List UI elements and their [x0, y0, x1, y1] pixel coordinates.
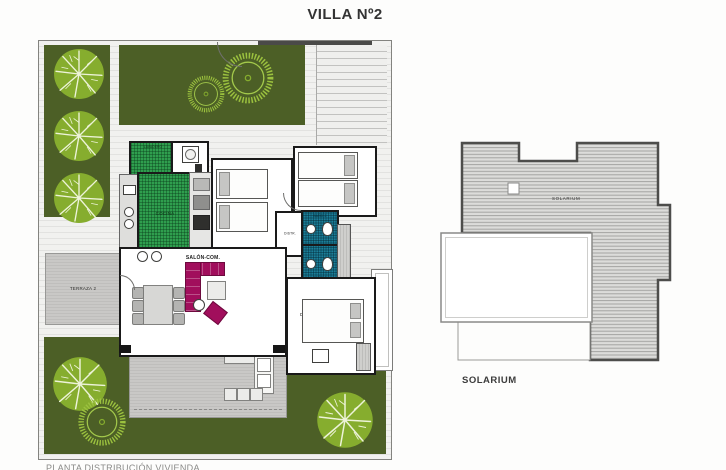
washing-machine-icon	[182, 146, 199, 163]
toilet-icon	[322, 257, 333, 271]
dining-chair	[173, 313, 185, 325]
room-bedroom-3: DORM 3	[293, 146, 377, 217]
room-bathroom-2: BAÑO 2	[301, 210, 339, 248]
dining-chair	[132, 313, 144, 325]
footer-caption: PLANTA DISTRIBUCIÓN VIVIENDA	[46, 463, 200, 470]
roof-caption: SOLARIUM	[462, 375, 517, 386]
bed	[216, 169, 268, 199]
skylight	[508, 183, 519, 194]
side-table	[193, 299, 205, 311]
tree-icon	[52, 47, 106, 101]
stool-icon	[137, 251, 148, 262]
roof-plan: SOLARIUM	[440, 130, 726, 390]
bush-ring-icon	[75, 395, 129, 449]
deck-edge-line	[134, 409, 282, 410]
utility-cabinet	[195, 164, 202, 172]
nightstand	[312, 349, 329, 363]
fridge	[193, 178, 210, 191]
lower-roof-section	[458, 322, 590, 360]
driveway	[316, 45, 387, 145]
terrace-2-label: TERRAZA 2	[70, 287, 96, 292]
bed	[298, 152, 358, 179]
ground-floor-plan: TERRAZA 2 TERRAZA 1 LAVADERO	[38, 40, 392, 460]
dining-chair	[173, 300, 185, 312]
living-label: SALÓN-COM.	[186, 256, 220, 261]
room-bedroom-1: DORM 1	[286, 277, 376, 375]
wardrobe-strip	[356, 343, 371, 371]
terrace-cushion	[250, 388, 263, 401]
sink-icon	[306, 259, 316, 269]
bed	[298, 180, 358, 207]
sink-icon	[306, 224, 316, 234]
bed	[216, 202, 268, 232]
bush-ring-icon	[185, 73, 227, 115]
armchair	[203, 301, 228, 325]
double-bed	[302, 299, 364, 343]
page-title: VILLA Nº2	[307, 6, 382, 23]
floor-plan-sheet: VILLA Nº2 TERRAZA 2 TERRAZA 1	[0, 0, 726, 470]
tree-icon	[52, 109, 106, 163]
kitchen-sink	[124, 219, 134, 229]
toilet-icon	[322, 222, 333, 236]
hall-label: DISTR.	[284, 232, 296, 235]
tree-icon	[315, 390, 375, 450]
kitchen-hob	[123, 185, 136, 195]
kitchen-counter-left	[119, 174, 139, 254]
kitchen-label: COCINA	[156, 212, 175, 217]
kitchen-counter-right	[189, 172, 213, 254]
terrace-cushion	[237, 388, 250, 401]
tree-icon	[52, 171, 106, 225]
kitchen-sink	[124, 207, 134, 217]
room-kitchen: COCINA	[137, 172, 193, 256]
dining-table	[143, 285, 173, 325]
dining-chair	[132, 300, 144, 312]
wall-pillar	[273, 345, 285, 353]
terrace-2: TERRAZA 2	[45, 253, 121, 325]
stool-icon	[151, 251, 162, 262]
bathroom-2-label: BAÑO 2	[314, 215, 327, 218]
oven	[193, 215, 210, 230]
wardrobe-strip	[337, 224, 351, 283]
lower-roof	[441, 233, 592, 322]
solarium-label: SOLARIUM	[552, 196, 580, 201]
laundry-label: LAVADERO	[144, 146, 163, 149]
terrace-cushion	[224, 388, 237, 401]
wall-pillar	[119, 345, 131, 353]
coffee-table	[207, 281, 226, 300]
counter-unit	[193, 195, 210, 210]
room-living: SALÓN-COM.	[119, 247, 287, 357]
dining-chair	[173, 287, 185, 299]
